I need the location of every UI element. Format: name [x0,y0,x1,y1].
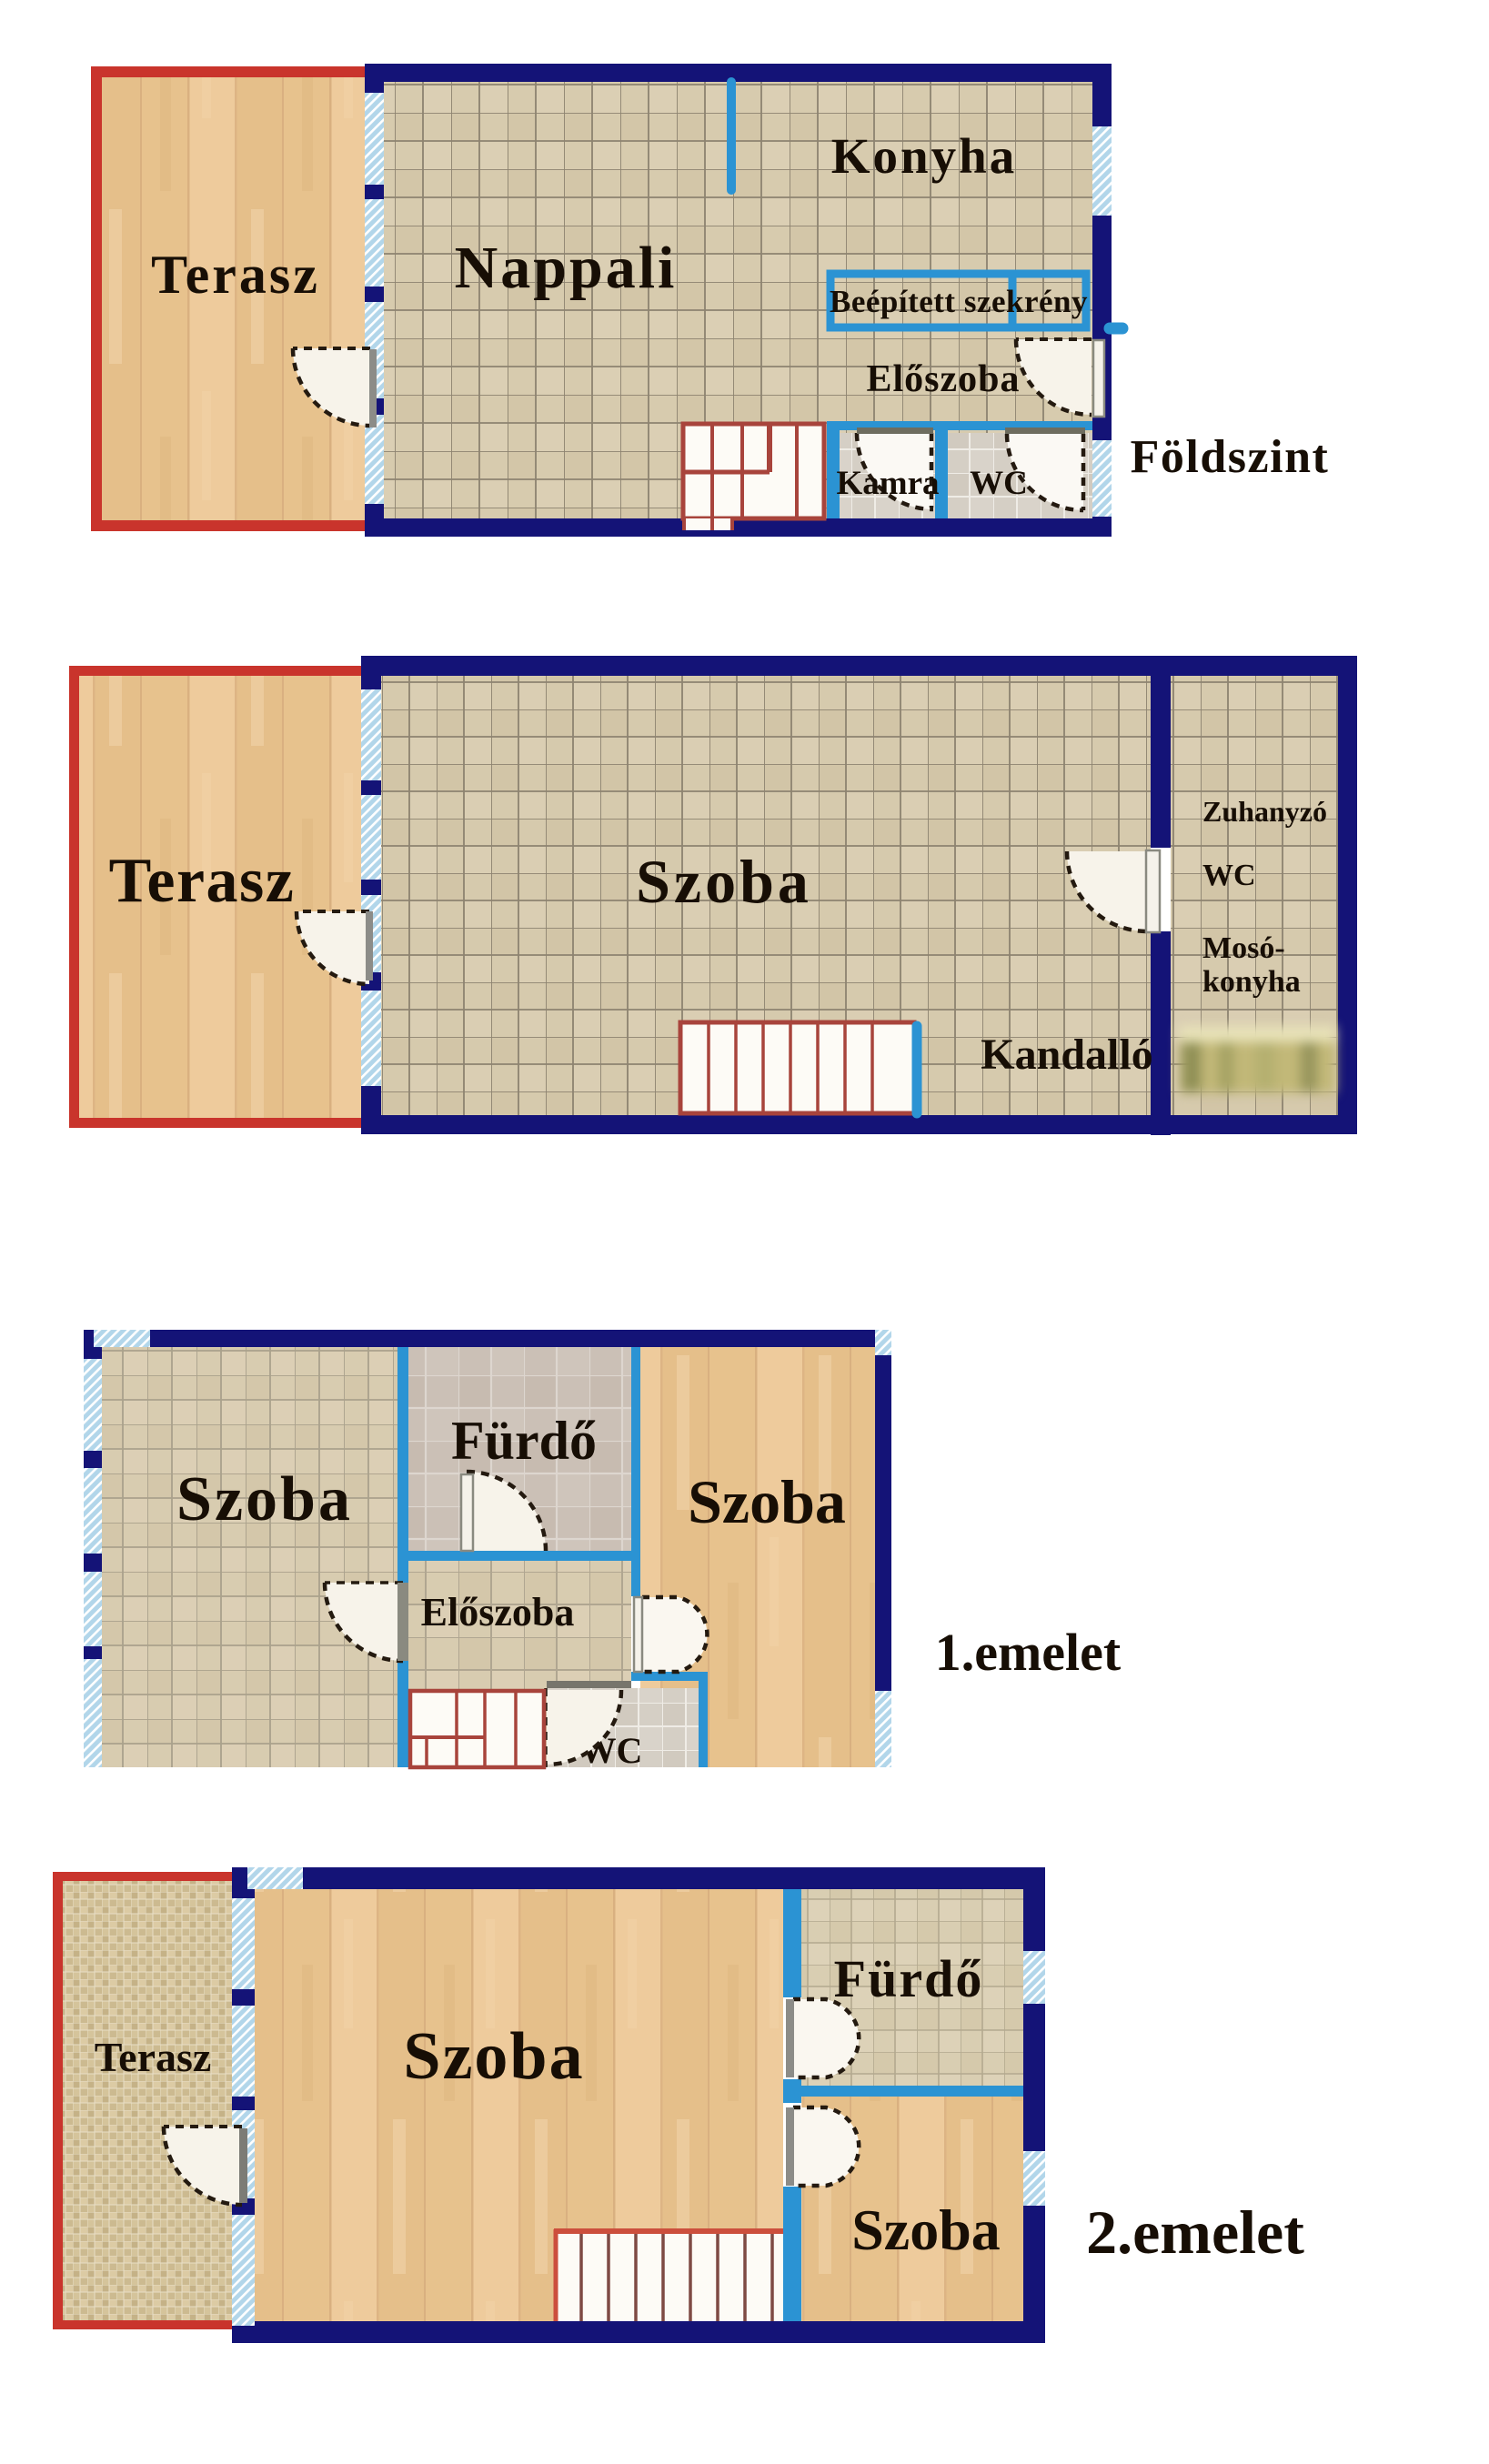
svg-text:Fürdő: Fürdő [451,1411,597,1471]
svg-text:Nappali: Nappali [455,235,678,301]
svg-text:1.emelet: 1.emelet [935,1623,1122,1682]
svg-text:Konyha: Konyha [831,128,1017,184]
svg-text:Terasz: Terasz [109,846,296,916]
svg-text:Szoba: Szoba [403,2019,584,2094]
svg-text:Fürdő: Fürdő [834,1949,984,2008]
svg-text:Földszint: Földszint [1131,431,1330,483]
svg-text:Szoba: Szoba [688,1467,846,1536]
svg-text:Zuhanyzó: Zuhanyzó [1202,795,1327,828]
svg-text:Szoba: Szoba [851,2197,1001,2262]
svg-text:2.emelet: 2.emelet [1086,2197,1304,2267]
svg-text:WC: WC [1202,859,1256,892]
svg-text:Mosó-: Mosó- [1202,931,1285,965]
svg-text:Kandalló: Kandalló [981,1031,1152,1079]
svg-text:Szoba: Szoba [176,1464,353,1534]
svg-text:WC: WC [970,465,1028,502]
svg-text:Előszoba: Előszoba [421,1590,575,1634]
svg-text:Terasz: Terasz [95,2034,212,2080]
svg-text:Beépített szekrény: Beépített szekrény [830,284,1088,319]
svg-text:Kamra: Kamra [836,465,939,502]
svg-text:Szoba: Szoba [636,847,812,916]
svg-text:konyha: konyha [1202,965,1301,999]
svg-text:Terasz: Terasz [151,245,320,305]
svg-text:Előszoba: Előszoba [866,358,1020,400]
